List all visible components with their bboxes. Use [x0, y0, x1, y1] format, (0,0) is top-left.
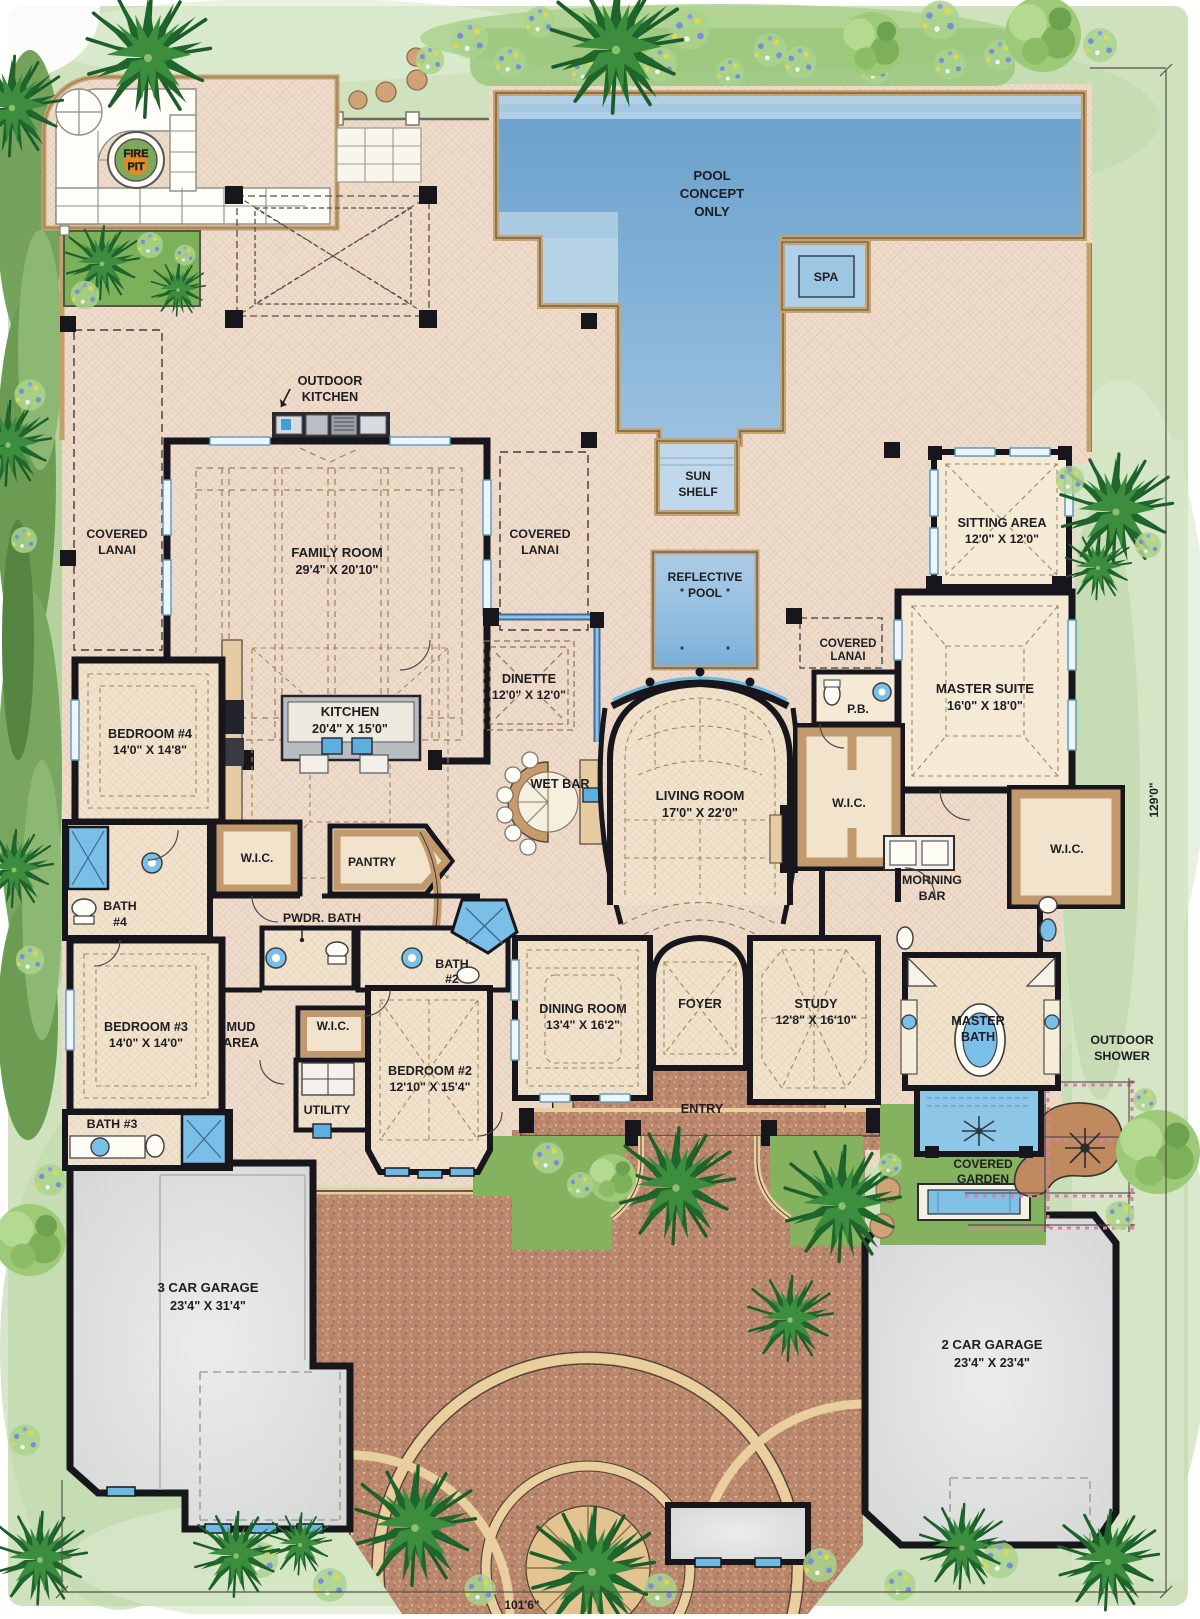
- svg-text:OUTDOOR: OUTDOOR: [298, 374, 363, 388]
- svg-text:W.I.C.: W.I.C.: [832, 796, 866, 810]
- svg-text:PWDR. BATH: PWDR. BATH: [283, 911, 361, 925]
- svg-text:PANTRY: PANTRY: [348, 855, 396, 869]
- svg-text:P.B.: P.B.: [847, 702, 869, 716]
- svg-text:DINETTE: DINETTE: [502, 672, 556, 686]
- svg-text:DINING ROOM: DINING ROOM: [539, 1002, 626, 1016]
- svg-text:BATH: BATH: [103, 899, 137, 913]
- svg-text:LANAI: LANAI: [830, 651, 865, 663]
- svg-text:STUDY: STUDY: [795, 997, 839, 1011]
- svg-text:14'0" X 14'8": 14'0" X 14'8": [113, 743, 187, 757]
- svg-text:KITCHEN: KITCHEN: [321, 704, 380, 719]
- svg-text:BATH #3: BATH #3: [87, 1117, 138, 1131]
- svg-text:2 CAR GARAGE: 2 CAR GARAGE: [941, 1337, 1042, 1352]
- svg-text:#2: #2: [445, 972, 459, 986]
- svg-text:FIRE: FIRE: [123, 148, 148, 160]
- svg-text:29'4" X 20'10": 29'4" X 20'10": [296, 563, 379, 577]
- svg-text:MASTER SUITE: MASTER SUITE: [936, 681, 1034, 696]
- svg-text:BEDROOM #3: BEDROOM #3: [104, 1020, 188, 1034]
- svg-text:MASTER: MASTER: [951, 1014, 1005, 1028]
- svg-text:COVERED: COVERED: [509, 527, 570, 541]
- svg-text:COVERED: COVERED: [953, 1157, 1013, 1171]
- svg-text:W.I.C.: W.I.C.: [1050, 842, 1084, 856]
- svg-text:LANAI: LANAI: [521, 543, 559, 557]
- svg-text:16'0" X 18'0": 16'0" X 18'0": [947, 699, 1023, 713]
- svg-text:FAMILY ROOM: FAMILY ROOM: [291, 545, 383, 560]
- svg-text:3 CAR GARAGE: 3 CAR GARAGE: [157, 1280, 258, 1295]
- svg-text:101'6": 101'6": [504, 1598, 539, 1612]
- svg-text:SHOWER: SHOWER: [1094, 1049, 1150, 1063]
- svg-text:REFLECTIVE: REFLECTIVE: [668, 570, 743, 584]
- svg-text:GARDEN: GARDEN: [957, 1172, 1009, 1186]
- svg-text:12'8" X 16'10": 12'8" X 16'10": [775, 1013, 856, 1027]
- svg-text:SUN: SUN: [685, 469, 710, 483]
- svg-text:POOL: POOL: [693, 168, 730, 183]
- svg-text:14'0" X 14'0": 14'0" X 14'0": [109, 1036, 183, 1050]
- svg-text:W.I.C.: W.I.C.: [317, 1019, 350, 1033]
- svg-text:#4: #4: [113, 915, 127, 929]
- svg-text:UTILITY: UTILITY: [304, 1103, 352, 1117]
- svg-text:BAR: BAR: [919, 889, 946, 903]
- svg-text:BEDROOM #4: BEDROOM #4: [108, 727, 192, 741]
- svg-text:17'0" X 22'0": 17'0" X 22'0": [662, 806, 738, 820]
- svg-text:COVERED: COVERED: [820, 638, 877, 650]
- svg-text:SHELF: SHELF: [678, 485, 717, 499]
- svg-text:CONCEPT: CONCEPT: [680, 186, 744, 201]
- svg-text:MUD: MUD: [227, 1020, 256, 1034]
- svg-text:BEDROOM #2: BEDROOM #2: [388, 1064, 472, 1078]
- svg-text:POOL: POOL: [688, 586, 722, 600]
- svg-text:BATH: BATH: [435, 957, 469, 971]
- svg-text:AREA: AREA: [223, 1036, 259, 1050]
- svg-text:ONLY: ONLY: [694, 204, 730, 219]
- svg-text:SITTING AREA: SITTING AREA: [957, 516, 1046, 530]
- svg-text:FOYER: FOYER: [678, 997, 722, 1011]
- svg-text:20'4" X 15'0": 20'4" X 15'0": [312, 722, 388, 736]
- svg-text:12'0" X 12'0": 12'0" X 12'0": [492, 688, 566, 702]
- svg-text:PIT: PIT: [127, 161, 144, 173]
- svg-text:LIVING ROOM: LIVING ROOM: [656, 788, 745, 803]
- svg-text:SPA: SPA: [814, 270, 839, 284]
- svg-text:13'4" X 16'2": 13'4" X 16'2": [546, 1018, 620, 1032]
- svg-text:LANAI: LANAI: [98, 543, 136, 557]
- svg-text:12'10" X 15'4": 12'10" X 15'4": [389, 1080, 470, 1094]
- svg-text:OUTDOOR: OUTDOOR: [1090, 1033, 1153, 1047]
- svg-text:23'4" X 23'4": 23'4" X 23'4": [954, 1356, 1030, 1370]
- svg-text:KITCHEN: KITCHEN: [302, 390, 358, 404]
- svg-text:12'0" X 12'0": 12'0" X 12'0": [965, 532, 1039, 546]
- svg-text:BATH: BATH: [961, 1030, 995, 1044]
- svg-text:23'4" X 31'4": 23'4" X 31'4": [170, 1299, 246, 1313]
- svg-text:W.I.C.: W.I.C.: [241, 851, 274, 865]
- svg-text:WET BAR: WET BAR: [530, 777, 589, 791]
- svg-text:129'0": 129'0": [1147, 782, 1161, 817]
- svg-text:ENTRY: ENTRY: [681, 1102, 724, 1116]
- svg-text:COVERED: COVERED: [86, 527, 147, 541]
